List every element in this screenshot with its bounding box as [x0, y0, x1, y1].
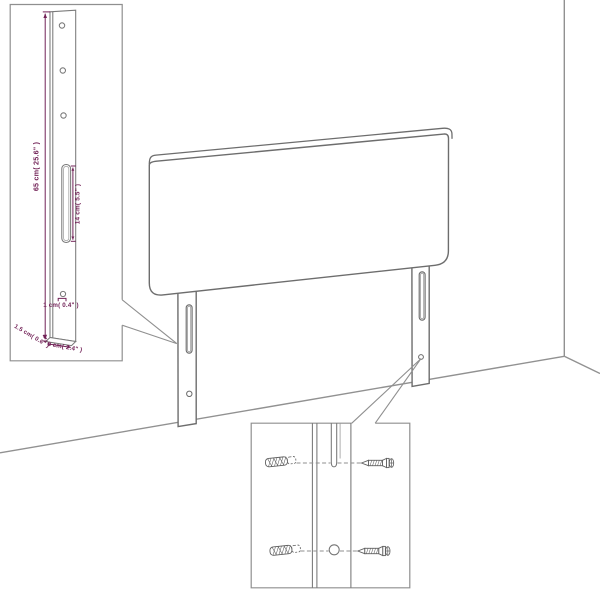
screw-head [383, 546, 386, 555]
screw-tip [358, 548, 365, 553]
screw-head-cone [383, 458, 387, 467]
mount-leader-line-right [375, 359, 421, 424]
dim-slot-length-label: 14 cm( 5.5" ) [75, 184, 82, 224]
leg-detail-hole-3 [61, 113, 66, 118]
wall-plug-top [265, 456, 296, 468]
mount-leg-hole [329, 545, 339, 555]
headboard-panel [149, 128, 452, 295]
mount-leg-front-view [312, 423, 351, 588]
left-leg-slot [186, 305, 192, 353]
leg-detail-drawing [46, 10, 76, 345]
assembly-diagram: 65 cm( 25.6" ) 14 cm( 5.5" ) 1 cm( 0.4" … [0, 0, 600, 600]
dim-hole-diameter-label: 1 cm( 0.4" ) [43, 302, 79, 309]
headboard-face [149, 134, 448, 295]
right-leg-slot [419, 272, 425, 320]
diagram-stage: 65 cm( 25.6" ) 14 cm( 5.5" ) 1 cm( 0.4" … [0, 0, 600, 600]
wall-plug-sleeve-dashed [292, 545, 301, 553]
inset-leader-line-lower [122, 325, 177, 343]
mount-leg-slot [331, 423, 336, 467]
screw-head [387, 458, 390, 467]
floor-line-right [564, 356, 600, 373]
floor-line-left [0, 356, 564, 453]
mounting-inset-box [251, 423, 410, 588]
leg-cutouts [186, 272, 425, 397]
leg-detail-slot [62, 165, 71, 243]
left-leg-hole [187, 391, 192, 396]
leg-detail-hole-2 [60, 68, 65, 73]
leg-detail-small-hole [60, 291, 65, 296]
leg-detail-hole-1 [59, 23, 64, 28]
wall-plug-bottom [270, 544, 301, 556]
wall-plug-sleeve-dashed [287, 456, 296, 464]
screw-head-cone [379, 546, 383, 555]
screw-bottom [358, 546, 390, 555]
inset-leader-line-upper [122, 300, 177, 344]
screw-top [362, 458, 394, 467]
dim-leg-height-label: 65 cm( 25.6" ) [32, 141, 41, 191]
screw-tip [362, 460, 369, 465]
mounting-detail-inset [251, 359, 421, 588]
